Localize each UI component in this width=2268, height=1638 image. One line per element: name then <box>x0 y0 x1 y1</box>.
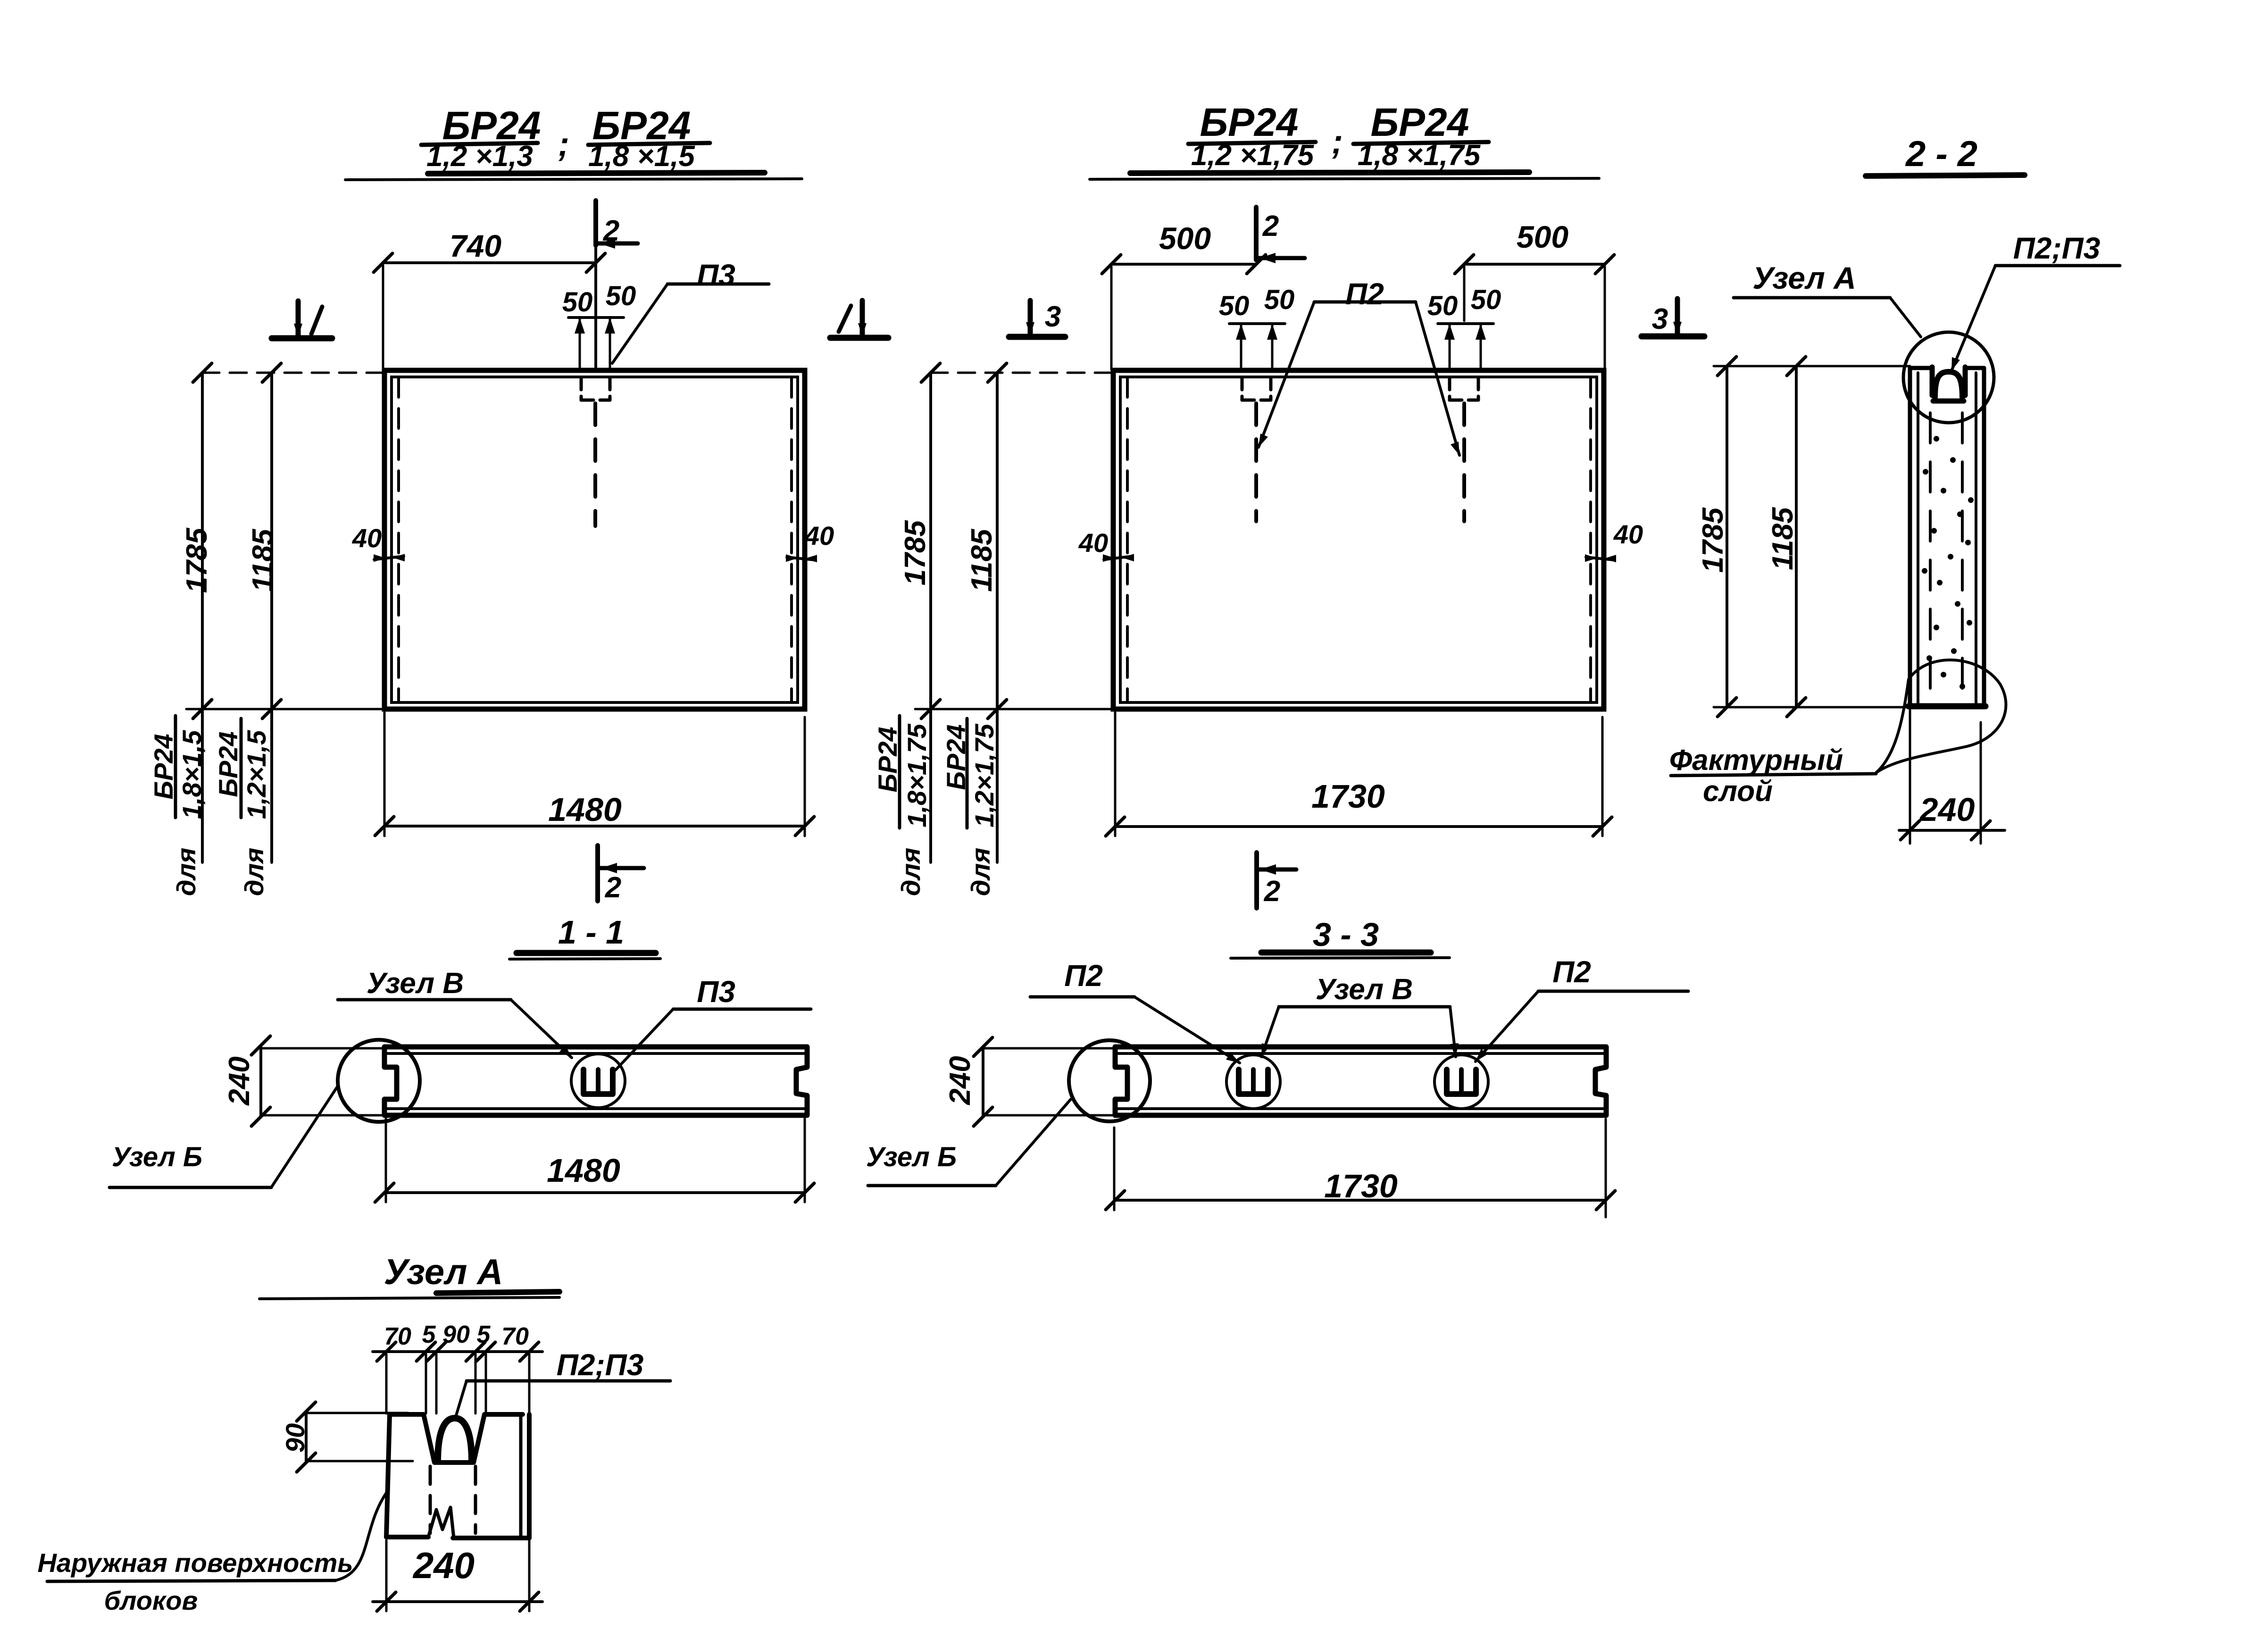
svg-text:1185: 1185 <box>1767 507 1799 570</box>
svg-text:Узел В: Узел В <box>1316 973 1413 1006</box>
svg-text:БР24: БР24 <box>149 734 178 799</box>
svg-text:1785: 1785 <box>181 527 213 593</box>
svg-text:90: 90 <box>280 1423 310 1453</box>
svg-text:П3: П3 <box>697 258 735 292</box>
svg-text:Узел А: Узел А <box>1752 260 1856 295</box>
svg-text:;: ; <box>1332 123 1343 161</box>
svg-text:1185: 1185 <box>966 528 998 592</box>
svg-text:3: 3 <box>1652 303 1668 335</box>
svg-text:50: 50 <box>1219 291 1250 321</box>
svg-text:500: 500 <box>1517 219 1568 254</box>
svg-text:Узел В: Узел В <box>367 967 464 1000</box>
svg-text:Фактурный: Фактурный <box>1669 744 1843 777</box>
svg-text:3: 3 <box>1045 301 1061 333</box>
svg-text:БР24: БР24 <box>1200 100 1299 144</box>
svg-text:П3: П3 <box>697 975 735 1009</box>
svg-text:Узел Б: Узел Б <box>112 1142 202 1172</box>
svg-text:1,2 ×1,75: 1,2 ×1,75 <box>1191 139 1315 172</box>
svg-text:40: 40 <box>804 521 834 551</box>
svg-text:90: 90 <box>442 1321 470 1348</box>
svg-text:1,2×1,75: 1,2×1,75 <box>969 723 999 827</box>
svg-text:240: 240 <box>944 1056 976 1105</box>
svg-text:П2: П2 <box>1064 959 1103 993</box>
svg-text:Узел Б: Узел Б <box>866 1142 957 1172</box>
svg-text:для: для <box>239 848 269 896</box>
svg-text:1,8×1,75: 1,8×1,75 <box>902 723 932 827</box>
svg-text:П2: П2 <box>1345 277 1384 311</box>
svg-text:1480: 1480 <box>547 1152 620 1189</box>
svg-text:1785: 1785 <box>1697 507 1729 573</box>
svg-text:1,8 ×1,5: 1,8 ×1,5 <box>588 140 695 173</box>
svg-text:П2: П2 <box>1552 955 1591 989</box>
svg-text:2: 2 <box>1262 210 1279 242</box>
svg-text:40: 40 <box>1613 519 1643 549</box>
svg-text:1,2×1,5: 1,2×1,5 <box>242 730 271 819</box>
svg-text:1785: 1785 <box>899 520 932 585</box>
svg-text:Наружная поверхность: Наружная поверхность <box>37 1548 353 1578</box>
svg-text:блоков: блоков <box>104 1586 198 1615</box>
svg-text:70: 70 <box>384 1323 411 1350</box>
svg-text:1480: 1480 <box>548 791 622 828</box>
svg-text:3 - 3: 3 - 3 <box>1313 916 1379 953</box>
svg-text:Узел А: Узел А <box>384 1252 503 1292</box>
svg-text:2 - 2: 2 - 2 <box>1905 134 1977 174</box>
svg-text:1,2 ×1,3: 1,2 ×1,3 <box>426 140 533 173</box>
svg-text:1185: 1185 <box>247 528 279 592</box>
svg-text:1,8 ×1,75: 1,8 ×1,75 <box>1358 139 1481 172</box>
svg-text:500: 500 <box>1159 221 1211 256</box>
svg-text:50: 50 <box>606 281 636 311</box>
svg-text:БР24: БР24 <box>1371 100 1469 144</box>
svg-text:2: 2 <box>603 215 619 247</box>
svg-text:740: 740 <box>450 228 501 263</box>
svg-text:БР24: БР24 <box>213 731 243 797</box>
svg-text:40: 40 <box>352 523 382 553</box>
svg-text:240: 240 <box>223 1056 256 1105</box>
svg-text:50: 50 <box>562 287 593 318</box>
svg-text:50: 50 <box>1264 284 1295 315</box>
svg-text:для: для <box>966 848 995 896</box>
svg-text:БР24: БР24 <box>873 727 902 792</box>
svg-text:П2;П3: П2;П3 <box>2013 231 2101 265</box>
svg-text:240: 240 <box>412 1545 475 1586</box>
svg-text:240: 240 <box>1919 791 1975 828</box>
svg-text:;: ; <box>558 125 569 163</box>
svg-text:1,8×1,5: 1,8×1,5 <box>177 730 207 819</box>
svg-text:П2;П3: П2;П3 <box>557 1348 644 1382</box>
svg-text:50: 50 <box>1427 291 1458 321</box>
svg-text:1 - 1: 1 - 1 <box>558 914 624 951</box>
svg-text:БР24: БР24 <box>941 724 971 790</box>
svg-text:70: 70 <box>501 1323 529 1350</box>
svg-text:2: 2 <box>605 871 621 904</box>
svg-text:слой: слой <box>1703 775 1773 808</box>
svg-text:50: 50 <box>1471 284 1501 315</box>
svg-text:40: 40 <box>1078 528 1108 558</box>
svg-text:для: для <box>171 848 201 896</box>
svg-text:1730: 1730 <box>1311 778 1385 815</box>
svg-text:для: для <box>896 848 926 896</box>
svg-text:2: 2 <box>1264 875 1280 908</box>
